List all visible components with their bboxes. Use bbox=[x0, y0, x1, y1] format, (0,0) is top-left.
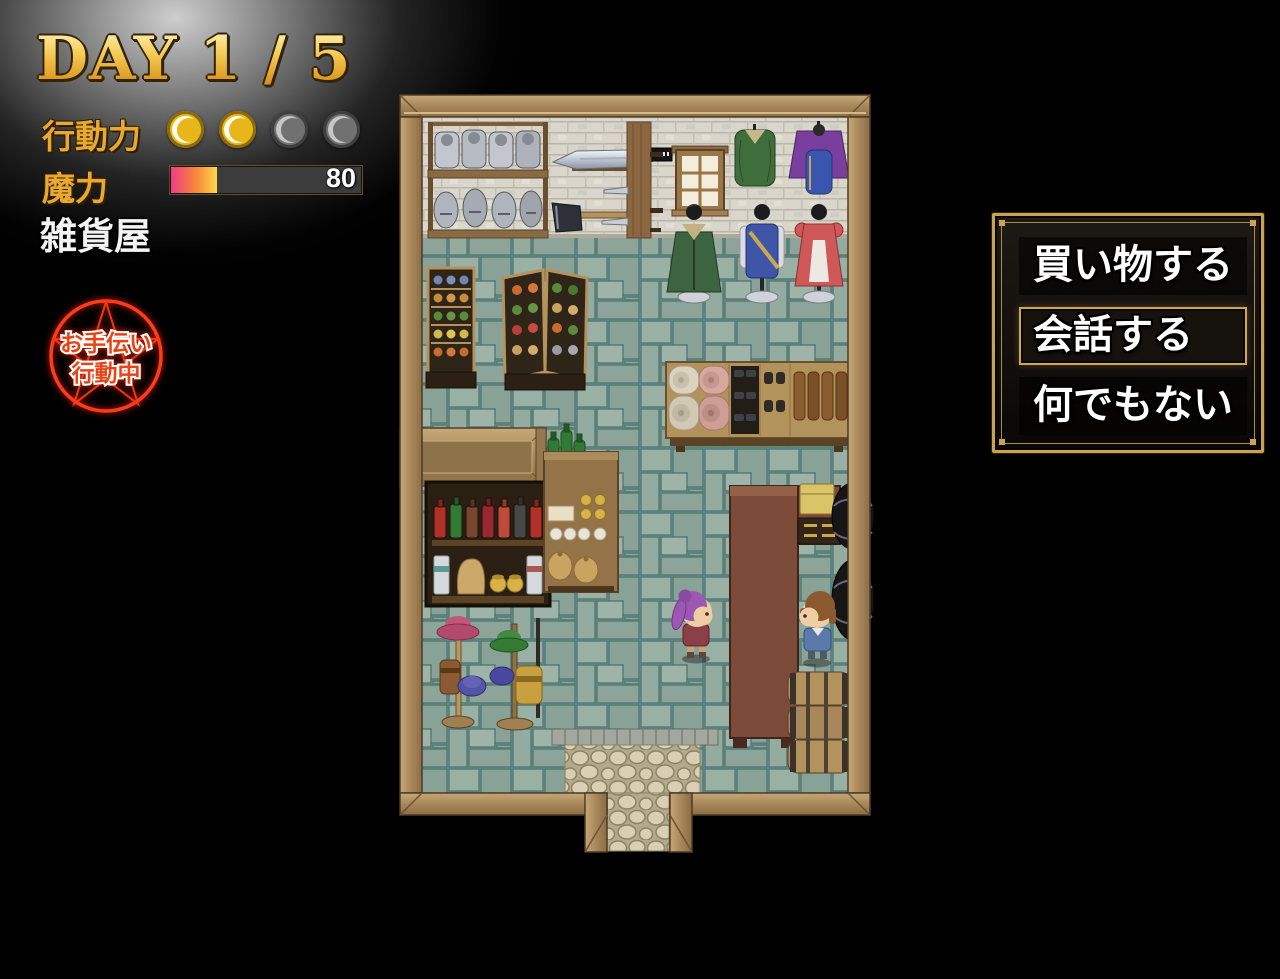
magic-label: 魔力 bbox=[42, 162, 108, 210]
action-orb-filled bbox=[167, 111, 204, 148]
badge-line-2: 行動中 bbox=[71, 360, 141, 386]
potion-shelf bbox=[426, 482, 550, 606]
hanging-tunic-green bbox=[735, 124, 775, 186]
window bbox=[672, 146, 728, 216]
goods-shelf bbox=[666, 362, 852, 452]
helper-status-badge: お手伝い 行動中 bbox=[35, 291, 177, 425]
menu-item-shopping[interactable]: 買い物する bbox=[1019, 237, 1247, 295]
magic-bar-fill bbox=[171, 167, 217, 193]
magic-bar: 80 bbox=[170, 166, 362, 194]
menu-item-talk[interactable]: 会話する bbox=[1019, 307, 1247, 365]
location-name: 雑貨屋 bbox=[40, 206, 151, 260]
badge-line-1: お手伝い bbox=[60, 330, 152, 356]
choice-menu: 買い物する 会話する 何でもない bbox=[992, 213, 1264, 453]
game-screen: DAY 1 / 5 行動力 魔力 80 雑貨屋 お手伝い 行動中 bbox=[0, 0, 1280, 979]
action-orb-filled bbox=[219, 111, 256, 148]
action-orb-empty bbox=[323, 111, 360, 148]
action-points-label: 行動力 bbox=[42, 110, 141, 158]
produce-stand-left bbox=[426, 268, 476, 388]
shop-map[interactable] bbox=[395, 90, 875, 862]
barrel-stack bbox=[788, 672, 850, 773]
magic-value: 80 bbox=[326, 163, 356, 194]
action-orb-empty bbox=[271, 111, 308, 148]
action-points-orbs bbox=[167, 111, 360, 148]
menu-item-nothing[interactable]: 何でもない bbox=[1019, 377, 1247, 435]
cash-box bbox=[800, 484, 834, 514]
day-counter: DAY 1 / 5 bbox=[36, 24, 352, 94]
doorway-threshold bbox=[552, 729, 718, 745]
